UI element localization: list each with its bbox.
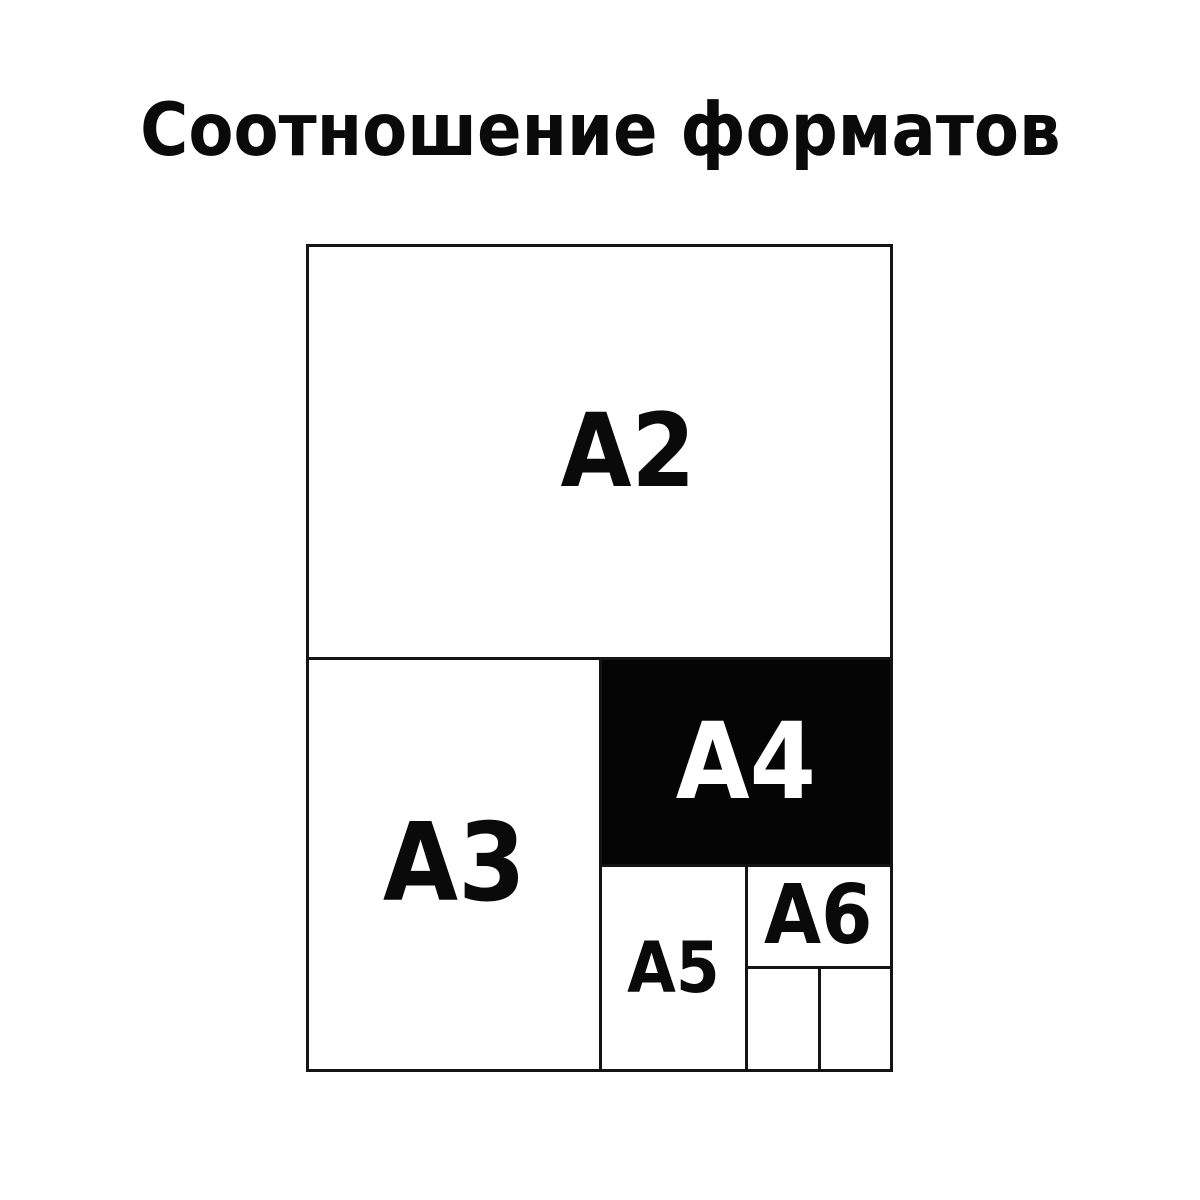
cell-a4: A4	[600, 658, 891, 865]
cell-a2: A2	[308, 246, 891, 658]
format-label-a3: A3	[383, 810, 526, 918]
cell-a5: A5	[600, 865, 746, 1070]
format-label-a6: A6	[764, 875, 872, 957]
cell-a3: A3	[308, 658, 600, 1070]
page: Соотношение форматов A2 A3 A4 A5 A6	[0, 0, 1200, 1200]
format-label-a4: A4	[675, 709, 815, 815]
cell-a6: A6	[746, 865, 891, 967]
format-label-a2: A2	[560, 401, 695, 503]
format-label-a5: A5	[627, 933, 720, 1003]
page-title: Соотношение форматов	[140, 88, 1060, 173]
cell-a7-left	[746, 967, 819, 1070]
cell-a7-right	[819, 967, 891, 1070]
title-area: Соотношение форматов	[0, 60, 1200, 200]
